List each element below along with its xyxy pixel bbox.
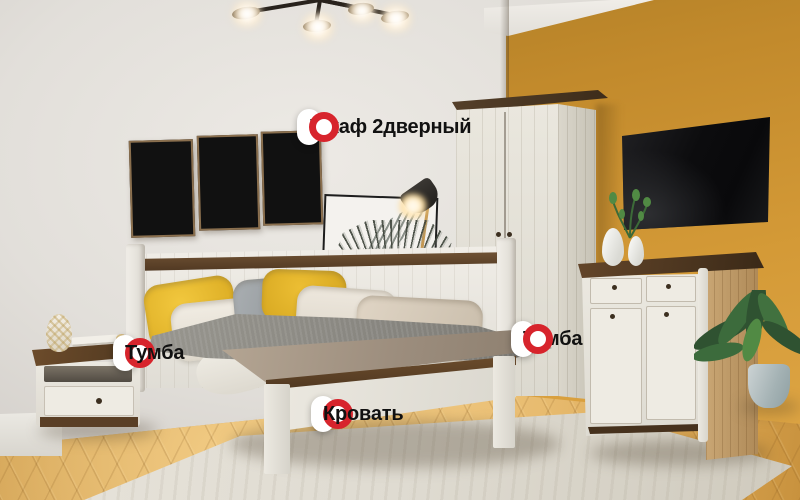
wardrobe-handle: [496, 232, 501, 237]
wardrobe-handle: [507, 232, 512, 237]
wall-art-panel-3: [261, 130, 323, 226]
hotspot-dresser[interactable]: Тумба: [511, 321, 535, 357]
floor-lamp-light: [398, 194, 428, 218]
hotspot-marker-icon[interactable]: [523, 324, 553, 354]
nightstand-vase: [46, 314, 72, 352]
lamp-bulb: [230, 2, 264, 26]
nightstand-drawer: [44, 386, 134, 416]
dresser-drawer: [590, 278, 642, 304]
plant-pot: [748, 364, 790, 408]
nightstand-knob: [96, 398, 102, 404]
nightstand-base: [40, 417, 138, 427]
dresser-handle: [612, 285, 617, 290]
decor-vase: [628, 236, 644, 266]
bed-leg: [264, 384, 290, 474]
lamp-bulb: [300, 14, 336, 40]
lamp-bulb: [346, 0, 378, 22]
hotspot-bed[interactable]: Кровать: [311, 396, 335, 432]
bedroom-scene: Шкаф 2дверный Тумба Тумба Кровать: [0, 0, 800, 500]
ceiling-lamp: [210, 0, 410, 56]
hotspot-label: Тумба: [125, 342, 184, 365]
wall-art-panel-2: [197, 134, 260, 231]
dresser-handle: [664, 312, 669, 317]
hotspot-wardrobe[interactable]: Шкаф 2дверный: [297, 109, 321, 145]
dresser-handle: [610, 314, 615, 319]
dresser-handle: [666, 284, 671, 289]
hotspot-label: Кровать: [323, 403, 404, 426]
dresser-door: [646, 306, 696, 420]
hotspot-nightstand[interactable]: Тумба: [113, 335, 137, 371]
dresser-door: [590, 308, 642, 424]
bed-leg: [493, 356, 515, 448]
dresser-drawer: [646, 276, 696, 302]
hotspot-marker-icon[interactable]: [309, 112, 339, 142]
wall-art-panel-1: [129, 139, 196, 238]
lamp-bulb: [378, 6, 414, 31]
